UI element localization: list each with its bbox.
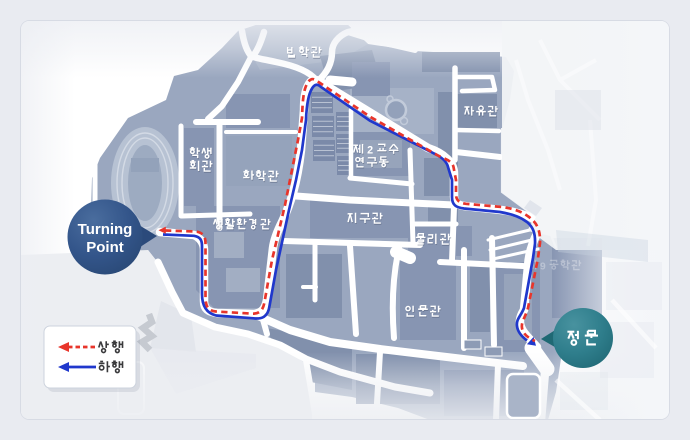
svg-text:2: 2 bbox=[367, 145, 373, 157]
svg-text:Point: Point bbox=[86, 239, 124, 256]
svg-text:9: 9 bbox=[540, 261, 546, 272]
svg-text:Turning: Turning bbox=[78, 221, 133, 238]
